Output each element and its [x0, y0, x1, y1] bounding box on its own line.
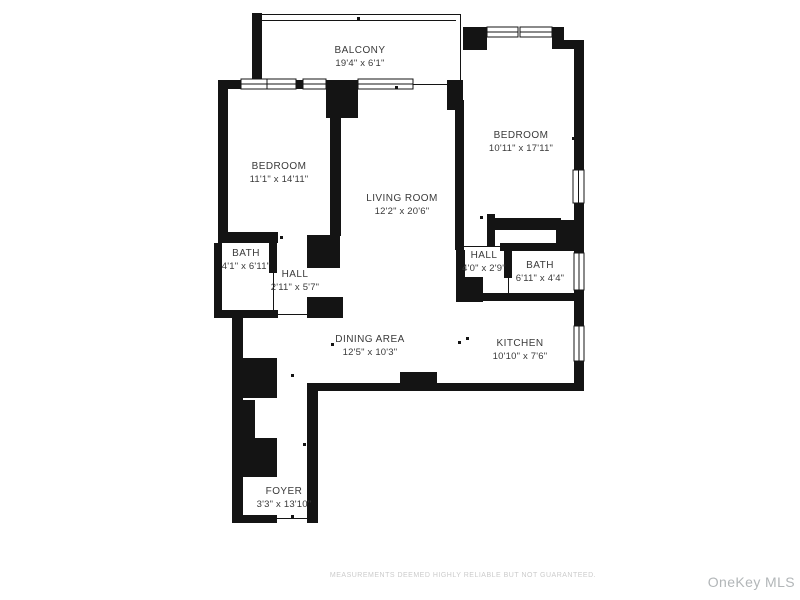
room-dims: 2'11" x 5'7"	[271, 281, 320, 294]
room-label-bath-left: BATH 4'1" x 6'11"	[222, 247, 271, 273]
room-dims: 4'0" x 2'9"	[462, 262, 506, 275]
room-name: BEDROOM	[489, 129, 553, 142]
room-label-bedroom-right: BEDROOM 10'11" x 17'11"	[489, 129, 553, 155]
room-label-hall-right: HALL 4'0" x 2'9"	[462, 249, 506, 275]
floor-plan-drawing	[0, 0, 800, 600]
floorplan-image: BALCONY 19'4" x 6'1" BEDROOM 11'1" x 14'…	[0, 0, 800, 600]
room-name: BATH	[222, 247, 271, 260]
room-name: BALCONY	[335, 44, 386, 57]
room-label-hall-left: HALL 2'11" x 5'7"	[271, 268, 320, 294]
room-name: HALL	[462, 249, 506, 262]
room-dims: 19'4" x 6'1"	[335, 57, 386, 70]
room-label-balcony: BALCONY 19'4" x 6'1"	[335, 44, 386, 70]
room-label-foyer: FOYER 3'3" x 13'10"	[257, 485, 312, 511]
room-dims: 12'2" x 20'6"	[366, 205, 438, 218]
room-label-dining-area: DINING AREA 12'5" x 10'3"	[335, 333, 404, 359]
room-name: BEDROOM	[250, 160, 309, 173]
room-dims: 12'5" x 10'3"	[335, 346, 404, 359]
room-name: FOYER	[257, 485, 312, 498]
room-dims: 3'3" x 13'10"	[257, 498, 312, 511]
room-label-bath-right: BATH 6'11" x 4'4"	[516, 259, 565, 285]
room-name: BATH	[516, 259, 565, 272]
room-dims: 10'10" x 7'6"	[493, 350, 548, 363]
room-label-bedroom-left: BEDROOM 11'1" x 14'11"	[250, 160, 309, 186]
room-name: KITCHEN	[493, 337, 548, 350]
room-dims: 6'11" x 4'4"	[516, 272, 565, 285]
room-dims: 10'11" x 17'11"	[489, 142, 553, 155]
onekey-mls-watermark: OneKey MLS	[708, 574, 795, 590]
room-label-living-room: LIVING ROOM 12'2" x 20'6"	[366, 192, 438, 218]
room-dims: 4'1" x 6'11"	[222, 260, 271, 273]
room-name: LIVING ROOM	[366, 192, 438, 205]
room-name: DINING AREA	[335, 333, 404, 346]
room-label-kitchen: KITCHEN 10'10" x 7'6"	[493, 337, 548, 363]
measurements-disclaimer: MEASUREMENTS DEEMED HIGHLY RELIABLE BUT …	[330, 572, 596, 579]
room-dims: 11'1" x 14'11"	[250, 173, 309, 186]
room-name: HALL	[271, 268, 320, 281]
